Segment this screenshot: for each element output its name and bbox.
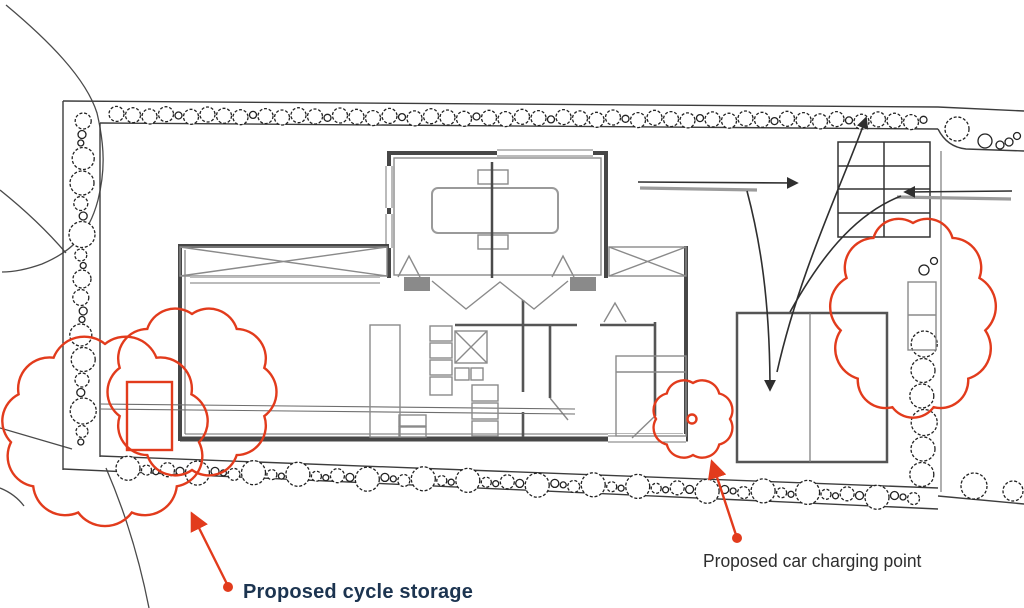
cycle-storage-marker	[127, 382, 172, 450]
building-fixtures	[399, 162, 686, 437]
site-plan-drawing	[0, 0, 1024, 608]
revision-cloud-car-charging	[654, 380, 733, 457]
hedge-strip-left	[69, 113, 96, 445]
site-boundary	[63, 101, 1024, 509]
revision-cloud-bin-store	[830, 219, 996, 418]
car-charging-marker	[688, 415, 697, 424]
revision-cloud-cycle-storage	[2, 337, 207, 526]
parking-bays	[737, 313, 887, 462]
car-charging-label: Proposed car charging point	[703, 551, 921, 572]
leader-car-charging	[712, 462, 742, 543]
site-plan-canvas: Proposed cycle storage Proposed car char…	[0, 0, 1024, 608]
cycle-storage-label: Proposed cycle storage	[243, 581, 473, 604]
hedge-extra-circles	[919, 117, 1023, 501]
movement-arrows	[638, 118, 1012, 390]
leader-cycle-storage	[192, 514, 233, 592]
